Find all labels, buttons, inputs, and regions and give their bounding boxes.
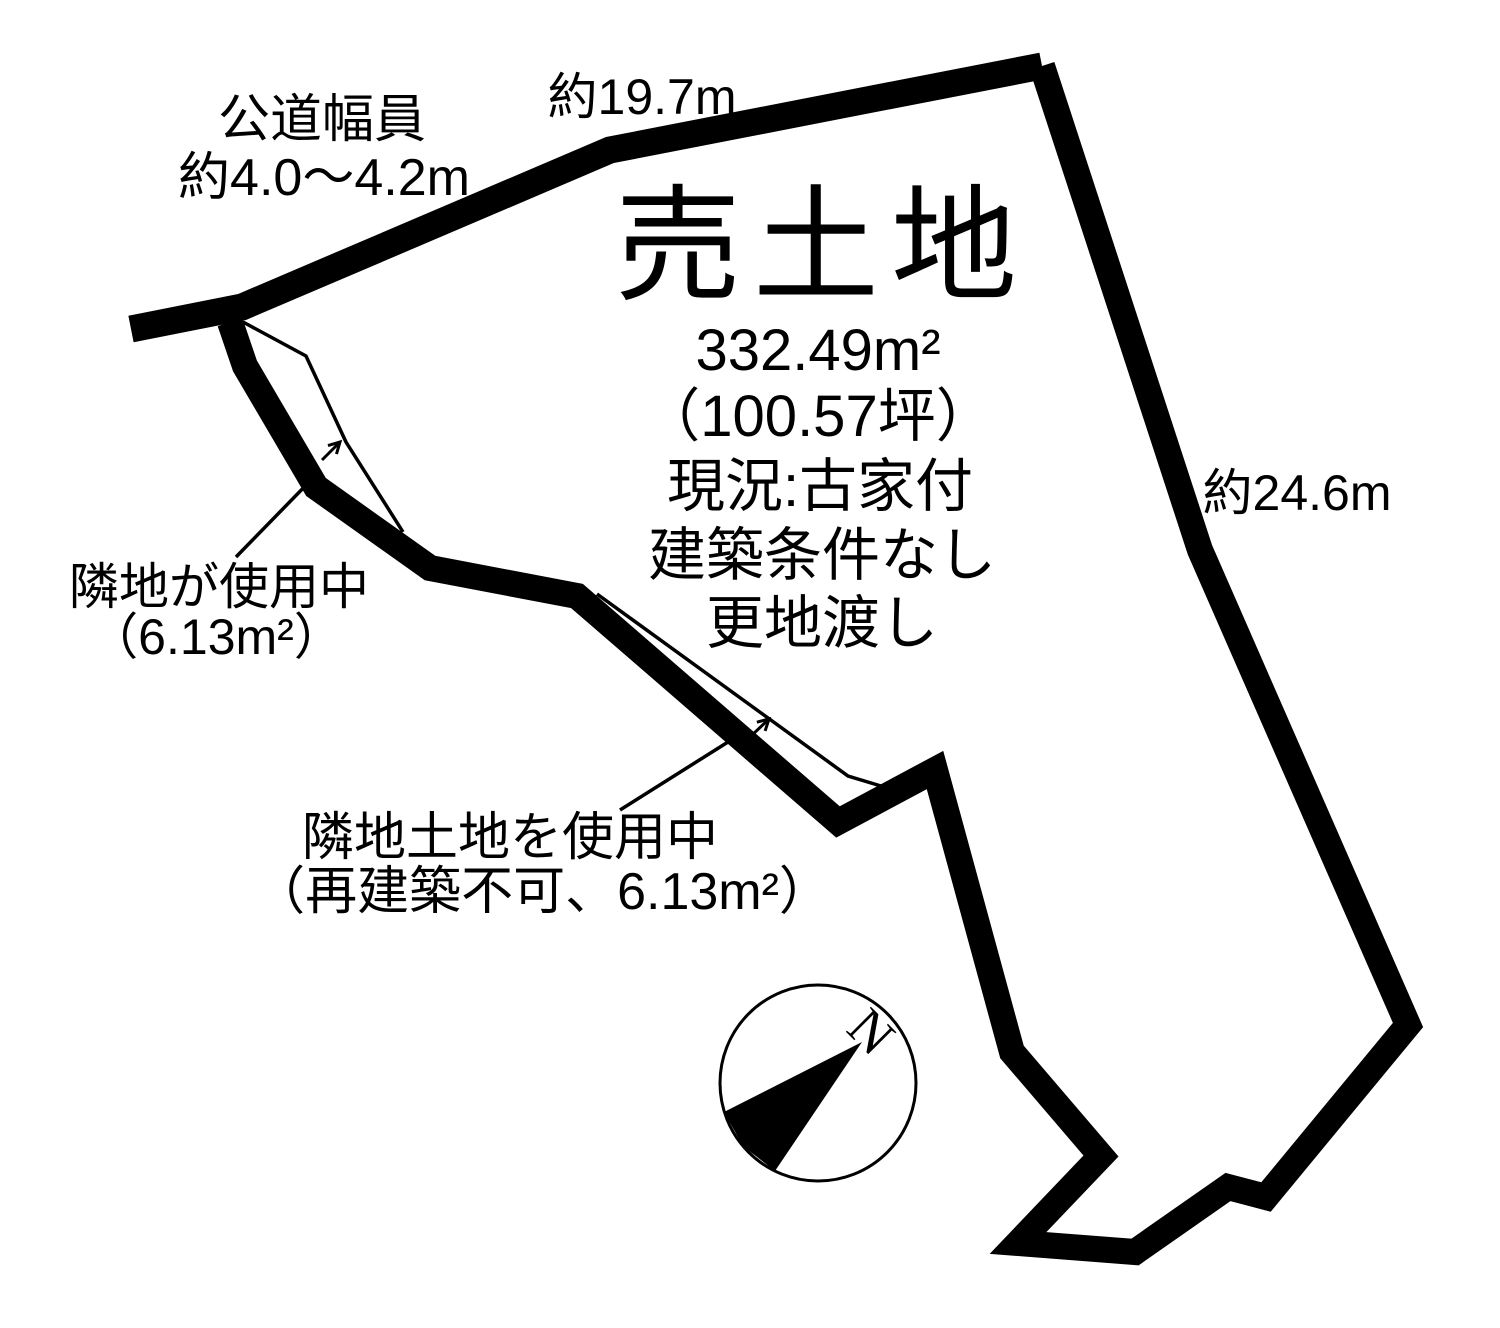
top-edge-length-label: 約19.7m — [548, 72, 737, 122]
road-width-value: 約4.0〜4.2m — [178, 152, 470, 204]
right-edge-length-label: 約24.6m — [1203, 468, 1392, 518]
leader-line-bottom-encroachment — [620, 742, 728, 810]
left-encroachment-label-line2: （6.13m²） — [88, 612, 344, 662]
left-encroachment-label-line1: 隣地が使用中 — [69, 562, 369, 612]
road-width-label: 公道幅員 — [218, 94, 426, 146]
compass-needle — [724, 1042, 862, 1171]
handover-label: 更地渡し — [706, 595, 938, 653]
strip-direction-arrow-icon-bottom — [751, 719, 769, 736]
bottom-encroachment-label-line1: 隣地土地を使用中 — [302, 812, 718, 864]
bottom-encroachment-label-line2: （再建築不可、6.13m²） — [253, 866, 831, 918]
page-title: 売土地 — [615, 184, 1029, 310]
current-status-label: 現況:古家付 — [667, 458, 973, 516]
area-tsubo-label: （100.57坪） — [642, 388, 993, 446]
land-plot-diagram: N 約19.7m 公道幅員 約4.0〜4.2m 売土地 332.49m² （10… — [0, 0, 1500, 1328]
strip-direction-arrow-icon-left — [322, 442, 340, 460]
area-sqm-label: 332.49m² — [695, 322, 940, 380]
building-condition-label: 建築条件なし — [648, 527, 996, 585]
compass-rose-icon: N — [720, 985, 916, 1181]
leader-line-left-encroachment — [236, 478, 313, 557]
